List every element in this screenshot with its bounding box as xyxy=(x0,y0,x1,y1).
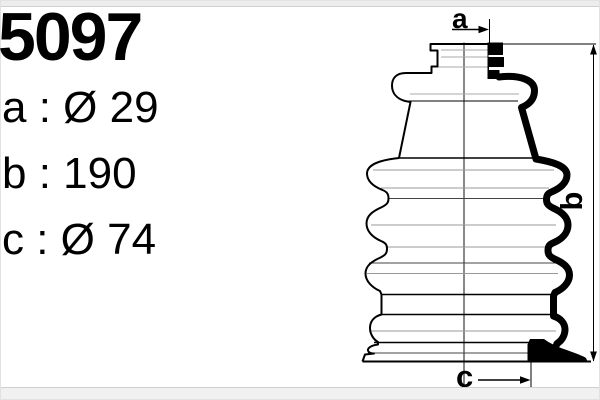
dimension-b-arrow-down-icon xyxy=(590,352,597,362)
catalog-card: 5097 a : Ø 29 b : 190 c : Ø 74 xyxy=(0,0,600,400)
dimension-c-arrow-icon xyxy=(520,376,531,383)
bottom-border-strip xyxy=(1,387,599,399)
boot-technical-drawing: a b c xyxy=(1,1,599,399)
dimension-b-label: b xyxy=(554,192,589,211)
dimension-b-arrow-up-icon xyxy=(590,45,597,55)
dimension-a: a xyxy=(452,3,490,45)
dimension-a-arrow-icon xyxy=(479,26,490,33)
